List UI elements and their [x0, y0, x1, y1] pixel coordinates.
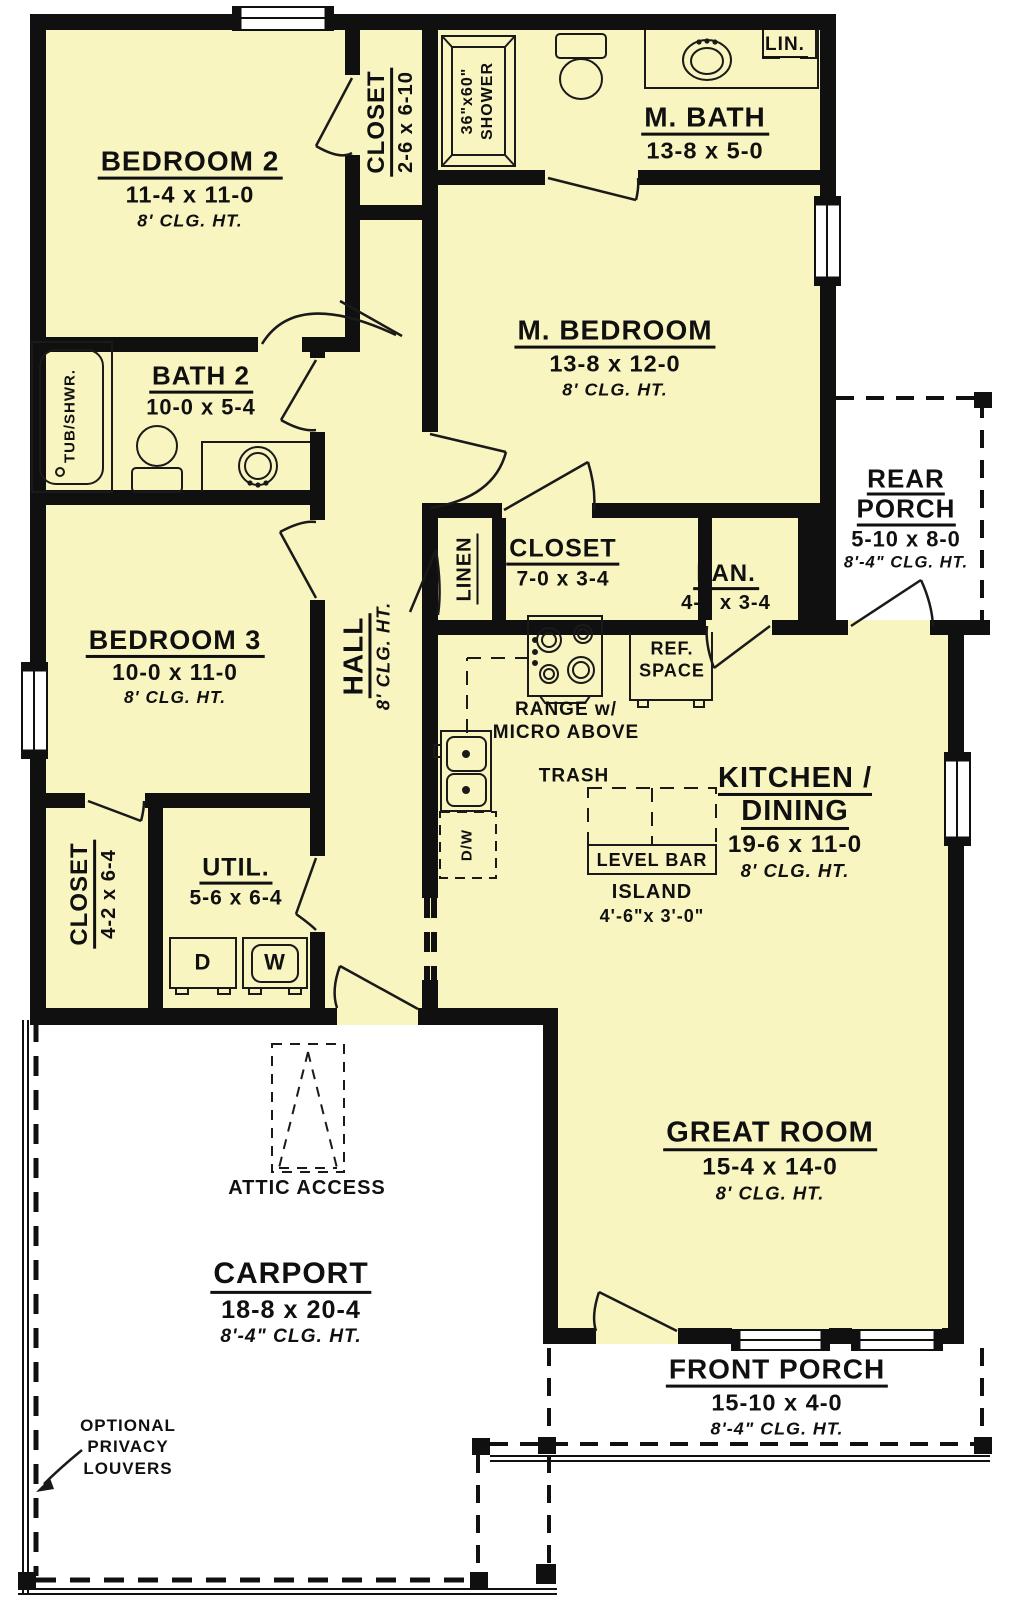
label-louvers: OPTIONAL PRIVACY LOUVERS: [80, 1415, 176, 1479]
door-rear-porch: [851, 580, 933, 626]
ref-space-text-1: REF.: [650, 639, 693, 658]
trash-text: TRASH: [539, 766, 609, 786]
label-level-bar: LEVEL BAR: [597, 850, 708, 870]
closet-bedroom2-dims: 2-6 x 6-10: [395, 67, 418, 176]
closet-hall-name: CLOSET: [506, 536, 619, 566]
label-pantry: PAN. 4-6 x 3-4: [681, 561, 771, 615]
label-master-bath: M. BATH 13-8 x 5-0: [641, 102, 769, 165]
label-master-bedroom: M. BEDROOM 13-8 x 12-0 8' CLG. HT.: [514, 315, 715, 400]
label-lin: LIN.: [762, 34, 808, 58]
dw-text: D/W: [460, 829, 476, 861]
shower-size: 36"x60": [460, 68, 477, 135]
label-bedroom2: BEDROOM 2 11-4 x 11-0 8' CLG. HT.: [98, 146, 283, 231]
label-dw: D/W: [460, 829, 477, 861]
attic-access-text: ATTIC ACCESS: [228, 1178, 386, 1199]
kitchen-ceiling: 8' CLG. HT.: [718, 861, 872, 881]
front-porch-name: FRONT PORCH: [666, 1355, 888, 1388]
label-shower: 36"x60" SHOWER: [459, 62, 497, 140]
label-bedroom3: BEDROOM 3 10-0 x 11-0 8' CLG. HT.: [86, 625, 265, 707]
tub-text: TUB/SHWR.: [63, 369, 79, 463]
rear-porch-ceiling: 8'-4" CLG. HT.: [844, 553, 968, 570]
bath2-name: BATH 2: [149, 363, 253, 394]
master-bedroom-ceiling: 8' CLG. HT.: [514, 379, 715, 399]
kitchen-name-2: DINING: [741, 796, 849, 829]
bath2-dims: 10-0 x 5-4: [146, 396, 256, 420]
label-closet-util: CLOSET 4-2 x 6-4: [67, 839, 121, 948]
great-room-ceiling: 8' CLG. HT.: [663, 1183, 877, 1204]
carport-dims: 18-8 x 20-4: [210, 1295, 371, 1323]
pantry-dims: 4-6 x 3-4: [681, 592, 771, 615]
master-bath-name: M. BATH: [641, 103, 769, 136]
label-util: UTIL. 5-6 x 6-4: [189, 854, 282, 911]
great-room-dims: 15-4 x 14-0: [663, 1154, 877, 1181]
label-tub: TUB/SHWR.: [63, 369, 80, 463]
floor-plan-canvas: BEDROOM 2 11-4 x 11-0 8' CLG. HT. M. BAT…: [0, 0, 1024, 1617]
label-hall: HALL 8' CLG. HT.: [337, 602, 394, 710]
master-bedroom-name: M. BEDROOM: [514, 316, 715, 349]
util-dims: 5-6 x 6-4: [189, 887, 282, 911]
window-greatroom-2: [852, 1330, 942, 1350]
level-bar-text: LEVEL BAR: [597, 851, 708, 870]
label-carport: CARPORT 18-8 x 20-4 8'-4" CLG. HT.: [210, 1257, 371, 1347]
linen-name: LINEN: [455, 534, 479, 605]
bedroom3-dims: 10-0 x 11-0: [86, 660, 265, 685]
label-island: ISLAND 4'-6"x 3'-0": [600, 880, 705, 928]
window-kitchen-right: [945, 753, 970, 845]
window-bedroom2-top: [233, 7, 333, 30]
ref-space-text-2: SPACE: [639, 661, 705, 680]
washer-text: W: [264, 951, 286, 974]
range-text-2: MICRO ABOVE: [493, 723, 639, 743]
label-linen: LINEN: [454, 534, 479, 605]
master-bath-dims: 13-8 x 5-0: [641, 138, 769, 164]
bedroom2-dims: 11-4 x 11-0: [98, 182, 283, 208]
lin-name: LIN.: [762, 35, 808, 58]
window-bedroom3-left: [22, 663, 47, 758]
label-closet-hall: CLOSET 7-0 x 3-4: [506, 535, 619, 592]
label-kitchen: KITCHEN / DINING 19-6 x 11-0 8' CLG. HT.: [718, 763, 872, 881]
attic-access: [272, 1044, 344, 1172]
carport-name: CARPORT: [210, 1258, 371, 1294]
louvers-text-1: OPTIONAL: [80, 1417, 176, 1435]
hall-ceiling: 8' CLG. HT.: [374, 602, 395, 710]
front-porch-ceiling: 8'-4" CLG. HT.: [666, 1418, 888, 1438]
bedroom3-name: BEDROOM 3: [86, 626, 265, 658]
label-great-room: GREAT ROOM 15-4 x 14-0 8' CLG. HT.: [663, 1116, 877, 1204]
rear-porch-dims: 5-10 x 8-0: [844, 528, 968, 551]
label-bath2: BATH 2 10-0 x 5-4: [146, 362, 256, 421]
great-room-name: GREAT ROOM: [663, 1117, 877, 1151]
master-bedroom-dims: 13-8 x 12-0: [514, 351, 715, 377]
island-text: ISLAND: [612, 882, 692, 903]
rear-porch-name-2: PORCH: [857, 496, 956, 526]
hall-name: HALL: [338, 614, 371, 699]
window-greatroom-1: [732, 1330, 829, 1350]
rear-porch-name-1: REAR: [867, 466, 945, 496]
range-text-1: RANGE w/: [515, 700, 617, 720]
closet-util-name: CLOSET: [67, 839, 96, 948]
carport-ceiling: 8'-4" CLG. HT.: [210, 1326, 371, 1348]
louvers-text-2: PRIVACY: [87, 1438, 168, 1456]
bedroom2-ceiling: 8' CLG. HT.: [98, 210, 283, 230]
util-name: UTIL.: [199, 855, 273, 885]
closet-hall-dims: 7-0 x 3-4: [506, 568, 619, 592]
dryer-text: D: [195, 951, 212, 974]
label-trash: TRASH: [539, 765, 609, 786]
label-front-porch: FRONT PORCH 15-10 x 4-0 8'-4" CLG. HT.: [666, 1354, 888, 1439]
bedroom3-ceiling: 8' CLG. HT.: [86, 688, 265, 707]
label-rear-porch: REAR PORCH 5-10 x 8-0 8'-4" CLG. HT.: [844, 466, 968, 571]
label-washer: W: [264, 951, 286, 976]
louvers-text-3: LOUVERS: [83, 1460, 172, 1478]
label-closet-bedroom2: CLOSET 2-6 x 6-10: [364, 67, 418, 176]
kitchen-dims: 19-6 x 11-0: [718, 832, 872, 859]
island-dims-text: 4'-6"x 3'-0": [600, 907, 705, 926]
label-dryer: D: [195, 951, 212, 976]
label-range: RANGE w/ MICRO ABOVE: [493, 699, 639, 745]
shower-text: SHOWER: [479, 62, 497, 140]
bedroom2-name: BEDROOM 2: [98, 147, 283, 180]
label-ref-space: REF. SPACE: [639, 638, 705, 681]
closet-bedroom2-name: CLOSET: [364, 67, 393, 176]
closet-util-dims: 4-2 x 6-4: [98, 839, 121, 948]
kitchen-name-1: KITCHEN /: [718, 763, 872, 796]
window-mbedroom-right: [815, 197, 840, 285]
louver-arrow: [36, 1450, 82, 1492]
front-porch-dims: 15-10 x 4-0: [666, 1390, 888, 1416]
pantry-name: PAN.: [693, 561, 759, 590]
label-attic-access: ATTIC ACCESS: [228, 1177, 386, 1199]
